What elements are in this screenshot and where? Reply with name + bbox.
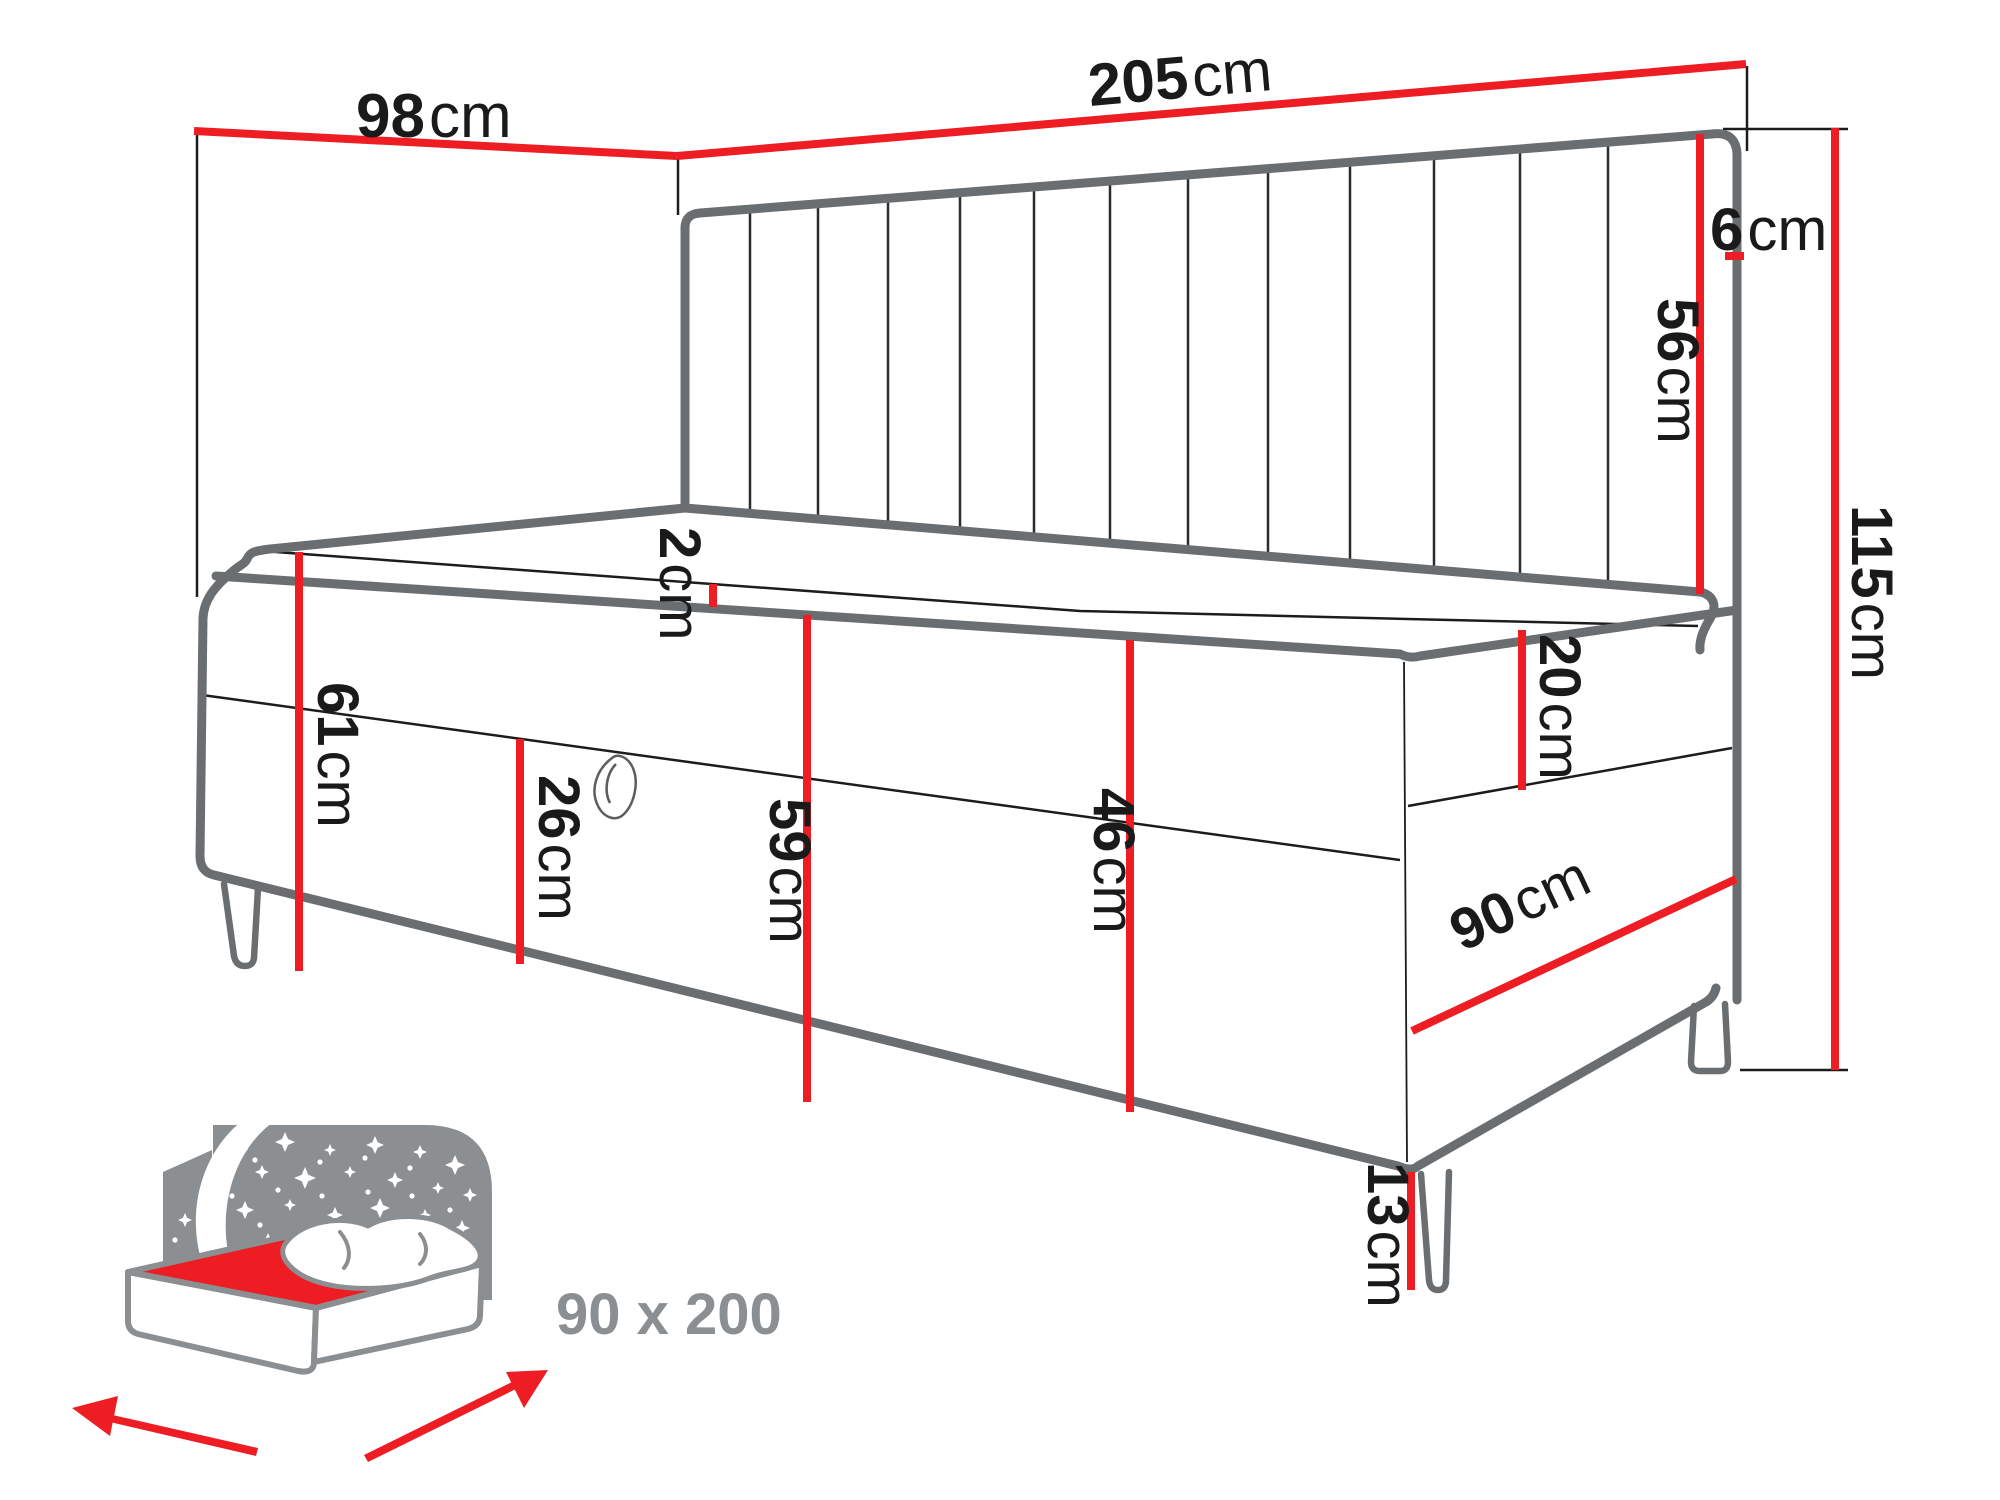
width-arrow-icon bbox=[72, 1396, 118, 1436]
mattress-top-edge bbox=[262, 551, 1698, 626]
star-dot-icon bbox=[409, 1193, 414, 1198]
dim-61-label: 61cm bbox=[305, 682, 370, 828]
length-arrow-shaft bbox=[364, 1381, 518, 1462]
front-right-leg bbox=[1421, 1172, 1449, 1290]
star-dot-icon bbox=[407, 1165, 412, 1170]
base-outline bbox=[200, 508, 1716, 1169]
dim-90-label: 90cm bbox=[1440, 843, 1600, 964]
dim-59-label: 59cm bbox=[757, 798, 822, 944]
mattress-bottom-edge bbox=[216, 576, 1737, 657]
star-dot-icon bbox=[447, 1207, 452, 1212]
size-arrows bbox=[72, 1370, 548, 1462]
mattress-corner-hook bbox=[1700, 592, 1714, 650]
star-dot-icon bbox=[252, 1157, 257, 1162]
dim-2-label: 2cm bbox=[647, 527, 712, 641]
rear-right-leg bbox=[1691, 1004, 1728, 1071]
front-right-corner-edge bbox=[1404, 662, 1407, 1162]
dim-6-label: 6cm bbox=[1710, 196, 1827, 263]
dim-46-label: 46cm bbox=[1081, 788, 1146, 934]
bed-outline bbox=[200, 134, 1737, 1169]
star-dot-icon bbox=[275, 1187, 280, 1192]
star-dot-icon bbox=[229, 1193, 234, 1198]
storage-handle bbox=[594, 756, 635, 818]
width-arrow-shaft bbox=[108, 1414, 258, 1456]
star-dot-icon bbox=[257, 1222, 262, 1227]
dim-13-label: 13cm bbox=[1355, 1162, 1420, 1308]
dim-26-label: 26cm bbox=[526, 775, 591, 921]
dim-56-label: 56cm bbox=[1645, 298, 1710, 444]
dim-98-label: 98cm bbox=[356, 82, 512, 151]
dim-20-label: 20cm bbox=[1527, 634, 1592, 780]
star-dot-icon bbox=[317, 1159, 322, 1164]
handle-loop-inner bbox=[607, 764, 616, 803]
bed-dimension-diagram: 98cm 205cm 6cm 56cm 115cm 2cm 61cm 26cm … bbox=[0, 0, 2000, 1500]
size-label: 90 x 200 bbox=[556, 1282, 782, 1347]
mattress-size-icon: 90 x 200 bbox=[72, 1114, 782, 1462]
headboard-mattress-junction bbox=[685, 508, 1700, 592]
front-left-leg bbox=[224, 884, 258, 966]
star-dot-icon bbox=[319, 1193, 324, 1198]
star-dot-icon bbox=[172, 1237, 177, 1242]
dim-115-label: 115cm bbox=[1839, 505, 1904, 680]
star-dot-icon bbox=[365, 1189, 370, 1194]
star-dot-icon bbox=[362, 1155, 367, 1160]
diagram-svg: 98cm 205cm 6cm 56cm 115cm 2cm 61cm 26cm … bbox=[0, 0, 2000, 1500]
extension-lines bbox=[197, 66, 1848, 1162]
dimension-labels: 98cm 205cm 6cm 56cm 115cm 2cm 61cm 26cm … bbox=[305, 36, 1904, 1308]
